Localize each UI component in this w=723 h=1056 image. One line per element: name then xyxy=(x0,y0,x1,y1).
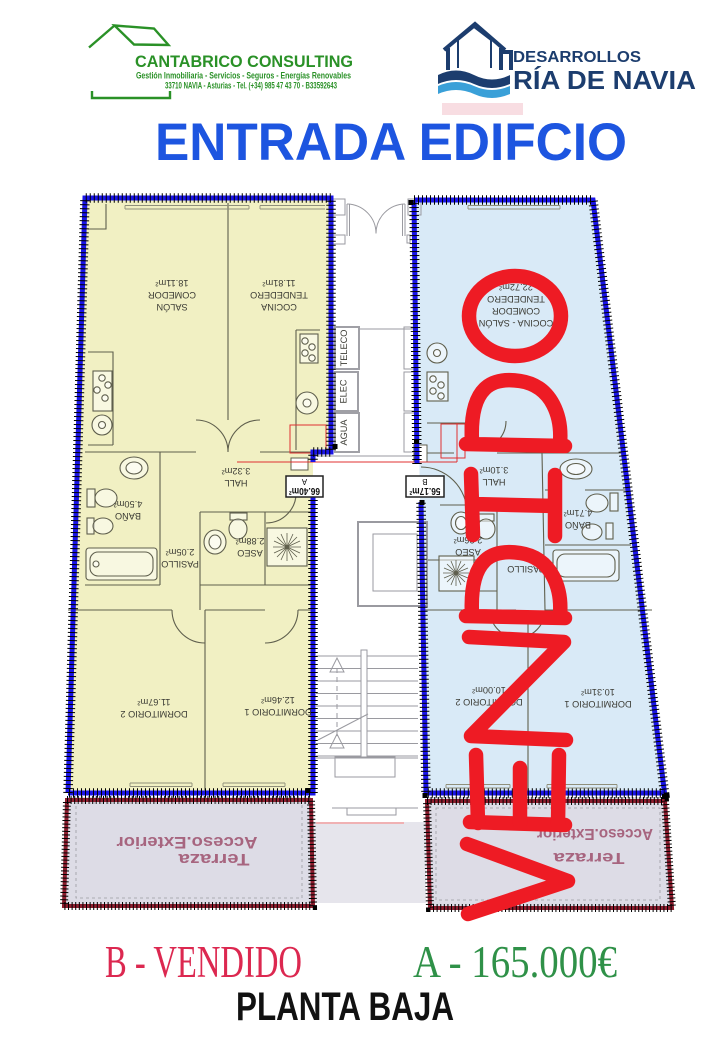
svg-text:ASEO: ASEO xyxy=(455,547,481,557)
svg-text:10.31m²: 10.31m² xyxy=(581,687,615,697)
svg-text:33710 NAVIA - Asturias - Tel.: 33710 NAVIA - Asturias - Tel. (+34) 985 … xyxy=(165,81,337,91)
svg-text:DESARROLLOS: DESARROLLOS xyxy=(513,49,641,66)
svg-text:COCINA: COCINA xyxy=(260,302,297,312)
svg-text:4.50m²: 4.50m² xyxy=(114,499,143,509)
svg-text:4.71m²: 4.71m² xyxy=(564,508,593,518)
svg-text:B - VENDIDO: B - VENDIDO xyxy=(105,937,302,987)
svg-text:56.17m²: 56.17m² xyxy=(409,485,441,496)
svg-text:11.81m²: 11.81m² xyxy=(262,278,295,288)
svg-text:A: A xyxy=(301,477,307,486)
svg-text:11.67m²: 11.67m² xyxy=(137,697,170,707)
svg-text:TENDEDERO: TENDEDERO xyxy=(250,290,308,300)
svg-text:TELECO: TELECO xyxy=(339,330,349,367)
svg-text:18.11m²: 18.11m² xyxy=(155,278,188,288)
svg-text:66.40m²: 66.40m² xyxy=(288,485,320,496)
svg-text:3.10m²: 3.10m² xyxy=(480,465,509,475)
svg-text:SALÓN: SALÓN xyxy=(156,302,187,312)
svg-text:Terraza: Terraza xyxy=(553,849,624,866)
svg-text:TENDEDERO: TENDEDERO xyxy=(487,294,545,304)
svg-text:Gestión Inmobiliaria - Servi: Gestión Inmobiliaria - Servicios - Segur… xyxy=(136,71,351,81)
svg-text:HALL: HALL xyxy=(225,478,248,488)
svg-text:HALL: HALL xyxy=(483,477,506,487)
svg-text:2.05m²: 2.05m² xyxy=(166,547,195,557)
svg-text:BAÑO: BAÑO xyxy=(565,520,591,530)
svg-text:12.46m²: 12.46m² xyxy=(261,695,295,705)
svg-text:AGUA: AGUA xyxy=(339,419,349,446)
svg-text:PASILLO: PASILLO xyxy=(161,559,199,569)
svg-text:BAÑO: BAÑO xyxy=(115,511,141,521)
svg-text:10.00m²: 10.00m² xyxy=(472,685,506,695)
svg-text:ELEC: ELEC xyxy=(339,379,349,403)
svg-text:ASEO: ASEO xyxy=(237,548,263,558)
svg-text:COCINA - SALÓN: COCINA - SALÓN xyxy=(479,318,554,328)
svg-text:COMEDOR: COMEDOR xyxy=(492,306,540,316)
svg-text:DORMITORIO 2: DORMITORIO 2 xyxy=(120,709,187,719)
svg-text:3.32m²: 3.32m² xyxy=(222,466,251,476)
svg-text:Terraza: Terraza xyxy=(178,850,250,869)
svg-text:DORMITORIO 1: DORMITORIO 1 xyxy=(564,699,631,709)
svg-text:2.88m²: 2.88m² xyxy=(236,536,265,546)
svg-text:CANTABRICO CONSULTING: CANTABRICO CONSULTING xyxy=(135,52,353,71)
svg-text:PLANTA BAJA: PLANTA BAJA xyxy=(236,985,454,1029)
svg-text:DORMITORIO 1: DORMITORIO 1 xyxy=(244,707,311,717)
svg-text:A - 165.000€: A - 165.000€ xyxy=(413,936,617,987)
svg-text:Acceso.Exterior: Acceso.Exterior xyxy=(116,833,257,852)
svg-text:COMEDOR: COMEDOR xyxy=(148,290,196,300)
svg-text:RÍA DE NAVIA: RÍA DE NAVIA xyxy=(513,65,696,95)
svg-text:ENTRADA EDIFCIO: ENTRADA EDIFCIO xyxy=(155,113,627,172)
svg-text:B: B xyxy=(422,477,427,486)
